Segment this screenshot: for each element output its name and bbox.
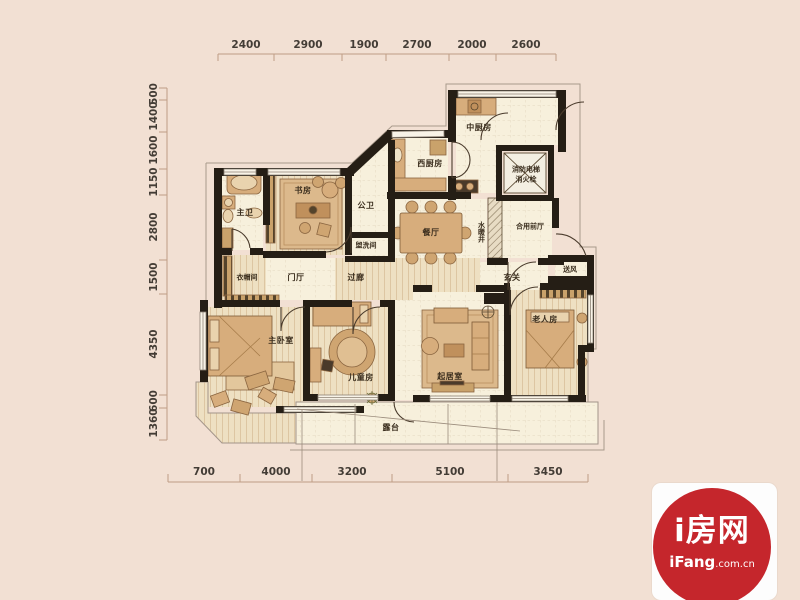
room-label-foyer: 门厅 xyxy=(288,274,305,282)
room-label-utility-shaft: 水暖井 xyxy=(478,222,485,243)
dim-bottom-0: 700 xyxy=(193,467,215,478)
room-label-corridor: 过廊 xyxy=(348,274,365,282)
dim-bottom-3: 5100 xyxy=(435,467,464,478)
master-bed-icon xyxy=(208,316,272,376)
room-label-dining: 餐厅 xyxy=(423,229,440,237)
dim-left-8: 1360 xyxy=(149,408,160,437)
wardrobe-icon xyxy=(223,256,232,296)
room-label-entrance: 玄关 xyxy=(504,274,521,282)
ifang-logo-domain: iFang.com.cn xyxy=(669,554,755,570)
dim-left-5: 1500 xyxy=(149,262,160,291)
dim-top-0: 2400 xyxy=(231,40,260,51)
room-label-middle-kitchen: 中厨房 xyxy=(466,124,492,132)
room-label-public-bath: 公卫 xyxy=(358,202,375,210)
room-label-elderly-room: 老人房 xyxy=(532,316,558,324)
ifang-logo-circle: i房网 iFang.com.cn xyxy=(653,488,771,600)
ifang-logo-card: i房网 iFang.com.cn xyxy=(652,483,777,600)
bath-cabinet xyxy=(222,228,233,248)
dim-left-2: 1600 xyxy=(149,135,160,164)
fridge-icon xyxy=(430,140,446,155)
ifang-domain-name: iFang xyxy=(669,553,715,571)
dim-left-6: 4350 xyxy=(149,329,160,358)
room-label-fire-elevator: 消防电梯 xyxy=(512,167,540,174)
dim-bottom-1: 4000 xyxy=(261,467,290,478)
dim-top-2: 1900 xyxy=(349,40,378,51)
ifang-logo-title: i房网 xyxy=(674,516,750,547)
dim-top-1: 2900 xyxy=(293,40,322,51)
dim-left-1: 1400 xyxy=(149,101,160,130)
room-label-washroom: 盥洗间 xyxy=(356,243,377,250)
room-label-living-room: 起居室 xyxy=(437,373,463,381)
dimension-top xyxy=(218,54,556,61)
toilet-icon xyxy=(223,210,233,223)
dim-top-4: 2000 xyxy=(457,40,486,51)
dim-bottom-2: 3200 xyxy=(337,467,366,478)
dim-left-3: 1150 xyxy=(149,167,160,196)
room-label-air-supply: 送风 xyxy=(563,267,577,274)
room-label-children-room: 儿童房 xyxy=(348,374,374,382)
floor-plan-page: 主卫 书房 公卫 盥洗间 衣帽间 门厅 过廊 西厨房 中厨房 消防电梯 消火栓 … xyxy=(0,0,800,600)
room-label-terrace: 露台 xyxy=(383,424,400,432)
room-label-master-bath: 主卫 xyxy=(237,209,254,217)
stove-icon xyxy=(468,100,481,113)
dim-top-5: 2600 xyxy=(511,40,540,51)
dim-top-3: 2700 xyxy=(402,40,431,51)
dimension-left xyxy=(159,88,167,440)
children-desk xyxy=(310,348,321,382)
dim-left-4: 2800 xyxy=(149,212,160,241)
desk-chair-icon xyxy=(300,223,311,234)
room-label-fire-hydrant: 消火栓 xyxy=(516,177,537,184)
room-label-west-kitchen: 西厨房 xyxy=(417,160,443,168)
ifang-domain-suffix: .com.cn xyxy=(715,559,755,570)
room-label-master-bedroom: 主卧室 xyxy=(268,337,294,345)
room-label-shared-hall: 合用前厅 xyxy=(516,224,544,231)
room-label-study: 书房 xyxy=(295,187,312,195)
dimension-bottom xyxy=(168,474,588,482)
room-label-cloakroom: 衣帽间 xyxy=(237,275,258,282)
dim-bottom-4: 3450 xyxy=(533,467,562,478)
